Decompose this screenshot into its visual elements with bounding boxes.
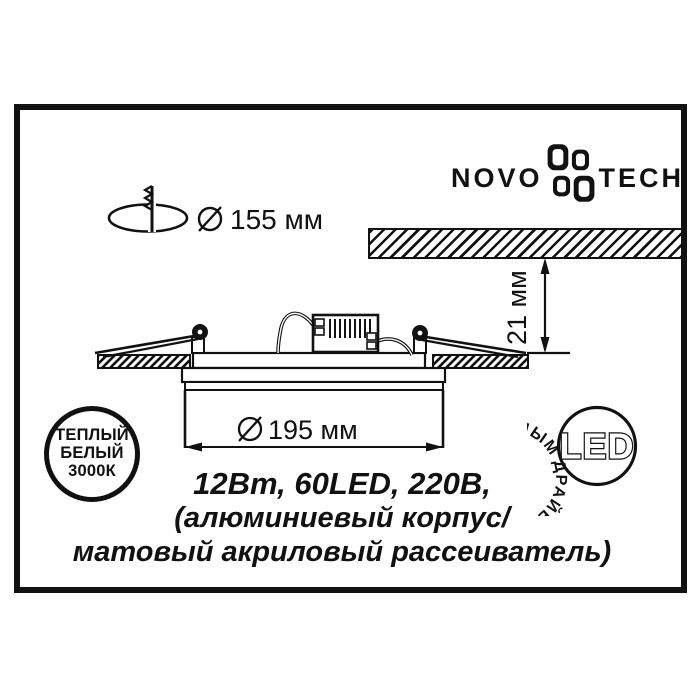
overall-diameter-dimension: 195 мм [185,415,443,452]
diameter-icon [239,417,261,441]
spec-line-diffuser: матовый акриловый рассеиватель) [12,536,672,570]
diameter-icon [199,207,221,231]
spec-line-power: 12Вт, 60LED, 220В, [12,466,672,502]
driver-box [313,315,378,352]
cutout-indicator: 155 мм [100,180,330,242]
novotech-logo: NOVO TECH [448,133,684,213]
spring-clip-right [412,325,526,357]
spec-sheet: NOVO TECH [0,0,700,700]
overall-diameter-label: 195 мм [268,415,358,445]
logo-text-tech: TECH [599,163,685,194]
logo-text-novo: NOVO [451,163,543,194]
fixture-cross-section: 195 мм [90,300,565,455]
led-badge-center-text: LED [560,426,635,467]
drill-hole-icon [109,186,187,232]
cutout-diameter-label: 155 мм [230,204,323,235]
wire-left [278,313,313,353]
ceiling-flange-left [98,355,190,368]
warm-white-line: БЕЛЫЙ [60,445,123,463]
ceiling-section [368,228,681,259]
warm-white-line: ТЕПЛЫЙ [55,427,129,445]
mounting-plate [193,353,425,368]
fixture-collar [185,382,443,390]
novotech-flower-icon [544,138,598,208]
spec-text: 12Вт, 60LED, 220В, (алюминиевый корпус/ … [12,466,672,569]
fixture-trim [182,368,445,382]
spec-line-housing: (алюминиевый корпус/ [12,502,672,536]
